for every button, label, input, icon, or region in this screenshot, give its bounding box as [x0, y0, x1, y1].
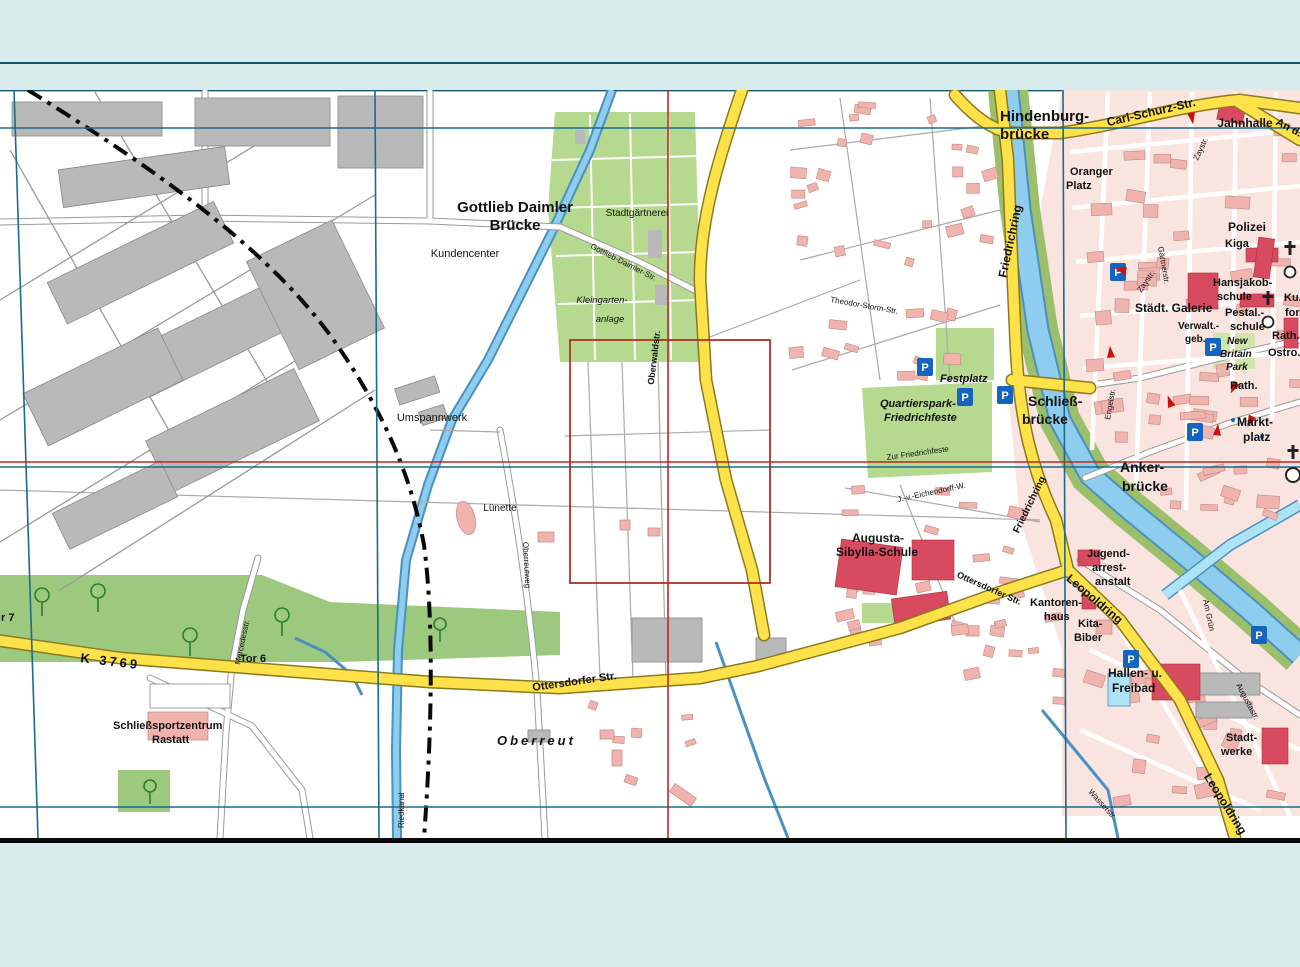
building — [851, 485, 864, 494]
building — [1009, 650, 1023, 657]
svg-text:Biber: Biber — [1074, 632, 1103, 644]
label-verwaltgeb: Verwalt.- — [1178, 321, 1219, 332]
label-marktplatz: Markt- — [1237, 415, 1273, 429]
parking-icon: P — [917, 358, 933, 376]
label-gottlieb-daimler-bruecke: Gottlieb Daimler — [457, 199, 573, 216]
svg-text:P: P — [961, 392, 968, 404]
svg-text:P: P — [1191, 427, 1198, 439]
map-canvas[interactable]: P P P P P P P P Gottlieb Daimler Brücke … — [0, 90, 1300, 838]
building — [1173, 231, 1189, 241]
label-kita-biber: Kita- — [1078, 618, 1103, 630]
building — [789, 347, 804, 359]
svg-text:arrest-: arrest- — [1092, 562, 1127, 574]
building — [797, 235, 809, 246]
label-kundencenter: Kundencenter — [431, 248, 500, 260]
building — [1086, 359, 1104, 372]
svg-text:platz: platz — [1243, 430, 1270, 444]
building — [1028, 647, 1039, 653]
label-riedkanal: Riedkanal — [397, 792, 406, 828]
svg-text:P: P — [1001, 390, 1008, 402]
building — [829, 319, 847, 330]
building — [904, 257, 914, 267]
svg-text:schule: schule — [1230, 321, 1265, 333]
building — [1240, 397, 1258, 406]
parking-icon: P — [1205, 338, 1221, 356]
building — [1115, 299, 1129, 313]
screenshot-root: { "palette": { "page_background": "#d8ec… — [0, 0, 1300, 967]
building — [858, 102, 875, 109]
label-staedt-galerie: Städt. Galerie — [1135, 301, 1213, 315]
building — [906, 308, 924, 318]
building — [681, 714, 693, 720]
building — [1143, 204, 1158, 217]
building — [1170, 500, 1181, 509]
building — [834, 246, 845, 257]
building — [1289, 379, 1300, 388]
svg-text:schule: schule — [1217, 291, 1252, 303]
label-hindenburgbruecke: Hindenburg- — [1000, 108, 1089, 125]
svg-text:brücke: brücke — [1022, 411, 1068, 427]
label-kantorenhaus: Kantoren- — [1030, 597, 1082, 609]
building — [953, 167, 963, 177]
svg-text:P: P — [1255, 630, 1262, 642]
building — [1180, 411, 1205, 420]
label-new-britain-park: New — [1227, 336, 1249, 347]
label-augusta-sibylla-schule: Augusta- — [852, 531, 904, 545]
svg-text:Rastatt: Rastatt — [152, 734, 190, 746]
city-map: P P P P P P P P Gottlieb Daimler Brücke … — [0, 90, 1300, 838]
fountain-dot — [1231, 418, 1235, 422]
svg-text:Friedrichfeste: Friedrichfeste — [884, 412, 957, 424]
svg-text:anlage: anlage — [596, 314, 625, 325]
building — [1095, 310, 1111, 325]
label-oberreut: Oberreut — [497, 733, 576, 748]
building — [1087, 251, 1104, 263]
building — [1256, 495, 1279, 509]
parking-icon: P — [1251, 626, 1267, 644]
building — [1146, 393, 1160, 405]
building — [1170, 159, 1187, 170]
svg-text:brücke: brücke — [1000, 126, 1049, 143]
svg-text:Freibad: Freibad — [1112, 681, 1155, 695]
building — [837, 138, 847, 147]
building — [951, 624, 969, 636]
building — [959, 502, 977, 508]
bottom-map-border — [0, 838, 1300, 843]
svg-text:Brücke: Brücke — [490, 217, 541, 234]
monument-circle-icon — [1286, 468, 1300, 482]
building — [967, 183, 980, 193]
label-quartierspark: Quartierspark- — [880, 398, 956, 410]
building — [1201, 504, 1218, 511]
building — [943, 353, 961, 365]
label-ostro-partial: Ostro... — [1268, 347, 1300, 359]
building — [842, 510, 858, 516]
svg-text:geb.: geb. — [1185, 334, 1206, 345]
label-tor7-partial: r 7 — [1, 612, 14, 624]
building — [849, 114, 859, 121]
svg-text:P: P — [1127, 654, 1134, 666]
building — [1190, 396, 1209, 405]
label-polizei: Polizei — [1228, 220, 1266, 234]
building — [1172, 786, 1186, 794]
parking-icon: P — [1187, 423, 1203, 441]
svg-text:brücke: brücke — [1122, 478, 1168, 494]
svg-text:P: P — [921, 362, 928, 374]
building — [1091, 203, 1112, 216]
label-kiga: Kiga — [1225, 238, 1250, 250]
building — [1200, 372, 1220, 382]
label-ku-partial: Ku... — [1284, 292, 1300, 304]
svg-text:Britain: Britain — [1220, 349, 1252, 360]
building — [923, 221, 932, 228]
building — [897, 371, 915, 380]
parking-icon: P — [957, 388, 973, 406]
svg-text:anstalt: anstalt — [1095, 576, 1131, 588]
label-schliessbruecke: Schließ- — [1028, 393, 1083, 409]
building — [1282, 153, 1296, 161]
building — [1053, 697, 1065, 705]
building — [792, 190, 805, 198]
label-oranger-platz: Oranger — [1070, 166, 1114, 178]
svg-text:haus: haus — [1044, 611, 1070, 623]
label-kleingartenanlage: Kleingarten- — [576, 295, 627, 306]
building — [1225, 196, 1250, 209]
label-stadtgaertnerei: Stadtgärtnerei — [606, 208, 669, 219]
building — [1149, 415, 1161, 425]
label-stadtwerke: Stadt- — [1226, 732, 1258, 744]
building — [952, 144, 962, 150]
building — [790, 167, 807, 179]
monument-circle-icon — [1285, 267, 1296, 278]
building — [973, 554, 990, 563]
label-ankerbruecke: Anker- — [1120, 459, 1165, 475]
building — [1124, 151, 1145, 161]
label-hallen-freibad: Hallen- u. — [1108, 666, 1162, 680]
label-hansjakobschule: Hansjakob- — [1213, 277, 1273, 289]
svg-text:Platz: Platz — [1066, 180, 1092, 192]
building — [1053, 668, 1066, 677]
building — [1132, 759, 1146, 774]
label-rath-1: Rath. — [1272, 330, 1300, 342]
top-separator-line — [0, 62, 1300, 64]
label-umspannwerk: Umspannwerk — [397, 412, 468, 424]
svg-text:P: P — [1209, 342, 1216, 354]
label-schliesssportzentrum: Schließsportzentrum — [113, 720, 223, 732]
label-jahnhalle: Jahnhalle — [1217, 116, 1273, 130]
label-for-partial: for... — [1285, 307, 1300, 319]
label-pestalschule: Pestal.- — [1225, 307, 1264, 319]
building — [1115, 432, 1127, 443]
label-luenette: Lünette — [483, 503, 517, 514]
building — [1154, 154, 1171, 163]
building — [631, 728, 642, 738]
label-jugendarrestanstalt: Jugend- — [1087, 548, 1130, 560]
parking-icon: P — [997, 386, 1013, 404]
svg-text:Park: Park — [1226, 362, 1248, 373]
label-rath-2: Rath. — [1230, 380, 1258, 392]
svg-text:werke: werke — [1220, 746, 1252, 758]
label-festplatz: Festplatz — [940, 373, 988, 385]
svg-text:Sibylla-Schule: Sibylla-Schule — [836, 545, 918, 559]
